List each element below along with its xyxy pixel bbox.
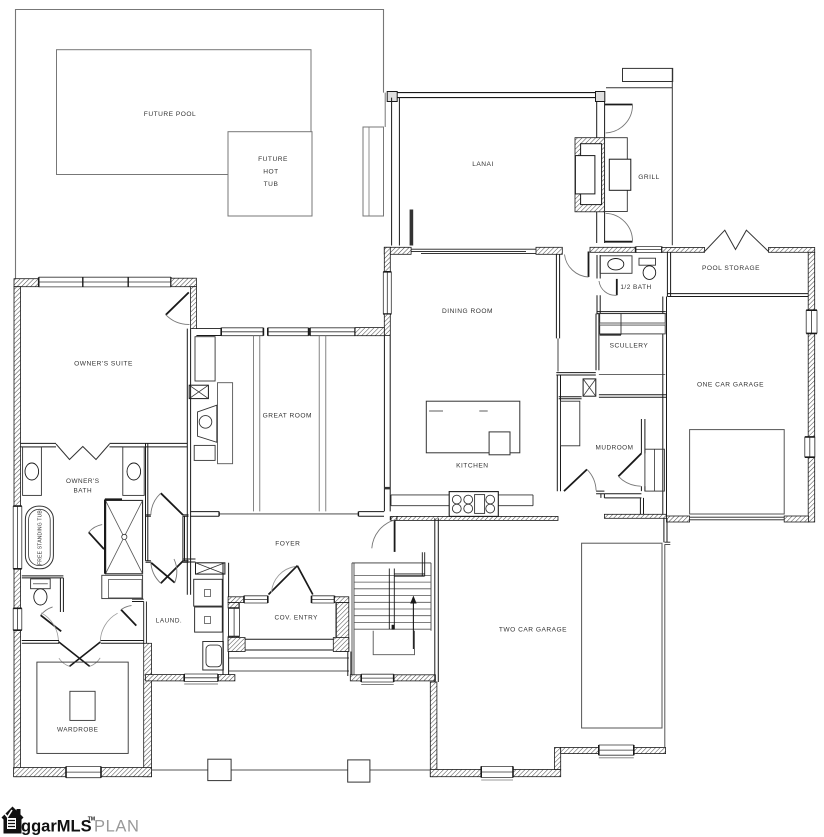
- svg-text:SCULLERY: SCULLERY: [610, 343, 649, 350]
- svg-text:DINING ROOM: DINING ROOM: [442, 308, 493, 315]
- svg-text:FUTURE: FUTURE: [258, 156, 288, 163]
- svg-text:FUTURE POOL: FUTURE POOL: [144, 111, 196, 118]
- svg-text:GRILL: GRILL: [638, 174, 660, 181]
- svg-text:POOL STORAGE: POOL STORAGE: [702, 265, 760, 272]
- svg-text:PLAN: PLAN: [94, 818, 140, 836]
- svg-text:TWO CAR GARAGE: TWO CAR GARAGE: [499, 627, 567, 634]
- svg-text:BATH: BATH: [74, 488, 93, 495]
- svg-text:ggarMLS: ggarMLS: [21, 818, 92, 836]
- svg-text:ONE CAR GARAGE: ONE CAR GARAGE: [697, 382, 764, 389]
- svg-text:WARDROBE: WARDROBE: [57, 727, 98, 734]
- svg-text:FOYER: FOYER: [275, 541, 300, 548]
- svg-text:MUDROOM: MUDROOM: [596, 445, 634, 452]
- svg-text:TUB: TUB: [264, 181, 279, 188]
- svg-text:FREE STANDING TUB: FREE STANDING TUB: [38, 510, 44, 565]
- svg-text:LANAI: LANAI: [472, 161, 494, 168]
- svg-text:KITCHEN: KITCHEN: [456, 463, 488, 470]
- svg-text:1/2 BATH: 1/2 BATH: [620, 284, 651, 291]
- svg-text:OWNER'S: OWNER'S: [66, 478, 99, 485]
- svg-text:OWNER'S SUITE: OWNER'S SUITE: [74, 360, 133, 367]
- svg-text:LAUND.: LAUND.: [156, 618, 182, 625]
- svg-text:GREAT ROOM: GREAT ROOM: [263, 413, 312, 420]
- svg-text:HOT: HOT: [263, 169, 278, 176]
- svg-text:COV. ENTRY: COV. ENTRY: [275, 615, 319, 622]
